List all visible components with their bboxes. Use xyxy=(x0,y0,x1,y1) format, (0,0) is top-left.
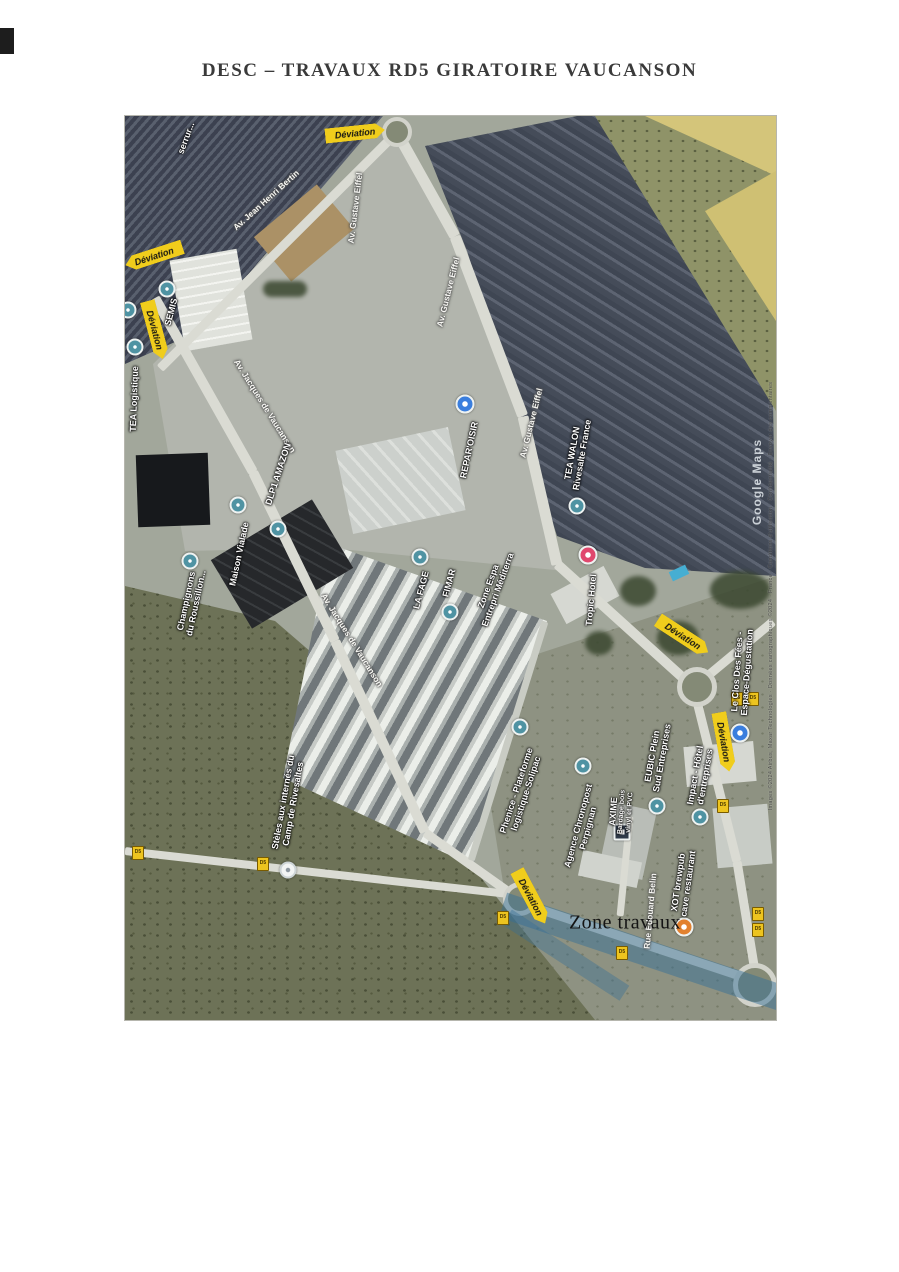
tree-cluster xyxy=(585,631,613,655)
scan-artifact xyxy=(0,28,14,54)
tree-row xyxy=(263,281,307,297)
road-shield: D5 xyxy=(717,799,729,813)
tree-cluster xyxy=(620,576,656,606)
map-attribution: Images ©2024 Airbus, Maxar Technologies … xyxy=(768,382,774,811)
road-shield: D5 xyxy=(752,907,764,921)
poi-marker xyxy=(270,521,287,538)
poi-marker xyxy=(569,498,586,515)
dark-store-building xyxy=(136,453,210,527)
poi-marker xyxy=(127,339,144,356)
poi-marker xyxy=(575,758,592,775)
poi-marker xyxy=(649,798,666,815)
poi-marker xyxy=(442,604,459,621)
poi-marker xyxy=(692,809,709,826)
work-zone-annotation: Zone travaux xyxy=(569,912,681,935)
hotel-marker xyxy=(579,546,598,565)
detour-sign-label: Déviation xyxy=(334,126,375,140)
road-shield: D5 xyxy=(497,911,509,925)
tree-cluster xyxy=(710,571,770,609)
roundabout-north xyxy=(382,117,412,147)
poi-marker xyxy=(230,497,247,514)
poi-label-tea-logistique: TEA Logistique xyxy=(128,366,140,432)
satellite-map: D5 D5 D5 D5 D5 D5 D5 D5 D5 Déviation Dév… xyxy=(125,116,776,1020)
page-title: DESC – TRAVAUX RD5 GIRATOIRE VAUCANSON xyxy=(0,60,899,82)
memorial-marker xyxy=(280,862,297,879)
shop-marker xyxy=(731,724,750,743)
document-page: DESC – TRAVAUX RD5 GIRATOIRE VAUCANSON xyxy=(0,0,899,1272)
poi-marker xyxy=(412,549,429,566)
road-shield: D5 xyxy=(752,923,764,937)
road-shield: D5 xyxy=(616,946,628,960)
shop-marker xyxy=(456,395,475,414)
road-shield: D5 xyxy=(132,846,144,860)
poi-marker xyxy=(512,719,529,736)
roundabout-vaucanson xyxy=(677,667,717,707)
poi-marker xyxy=(159,281,176,298)
road-shield: D5 xyxy=(257,857,269,871)
poi-label-axime: AXIMEBardage boisvinyl et PVC xyxy=(607,789,636,835)
google-maps-watermark: Google Maps xyxy=(750,439,764,525)
